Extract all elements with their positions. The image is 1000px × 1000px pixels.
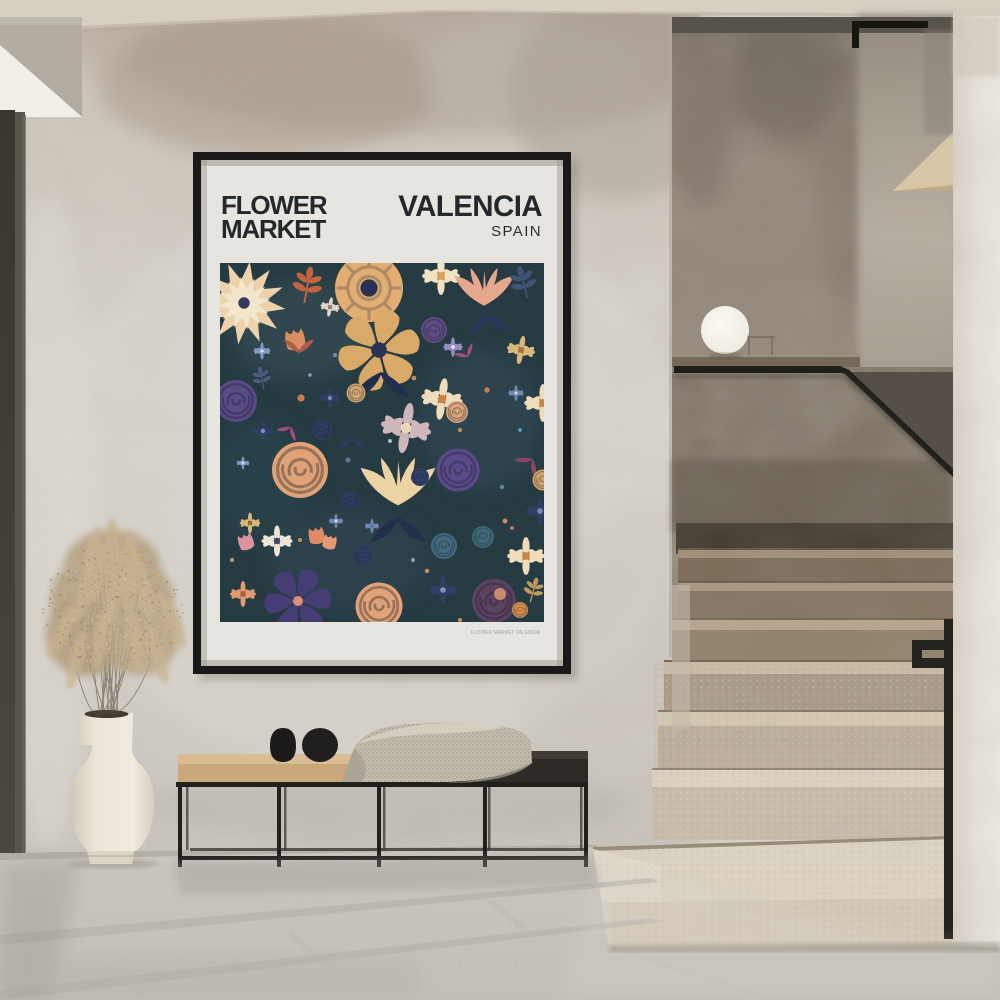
svg-text:FLOWER MARKET VALENCIA: FLOWER MARKET VALENCIA <box>471 630 541 636</box>
svg-text:SPAIN: SPAIN <box>491 223 542 240</box>
svg-text:MARKET: MARKET <box>221 214 326 244</box>
svg-text:VALENCIA: VALENCIA <box>398 190 542 223</box>
